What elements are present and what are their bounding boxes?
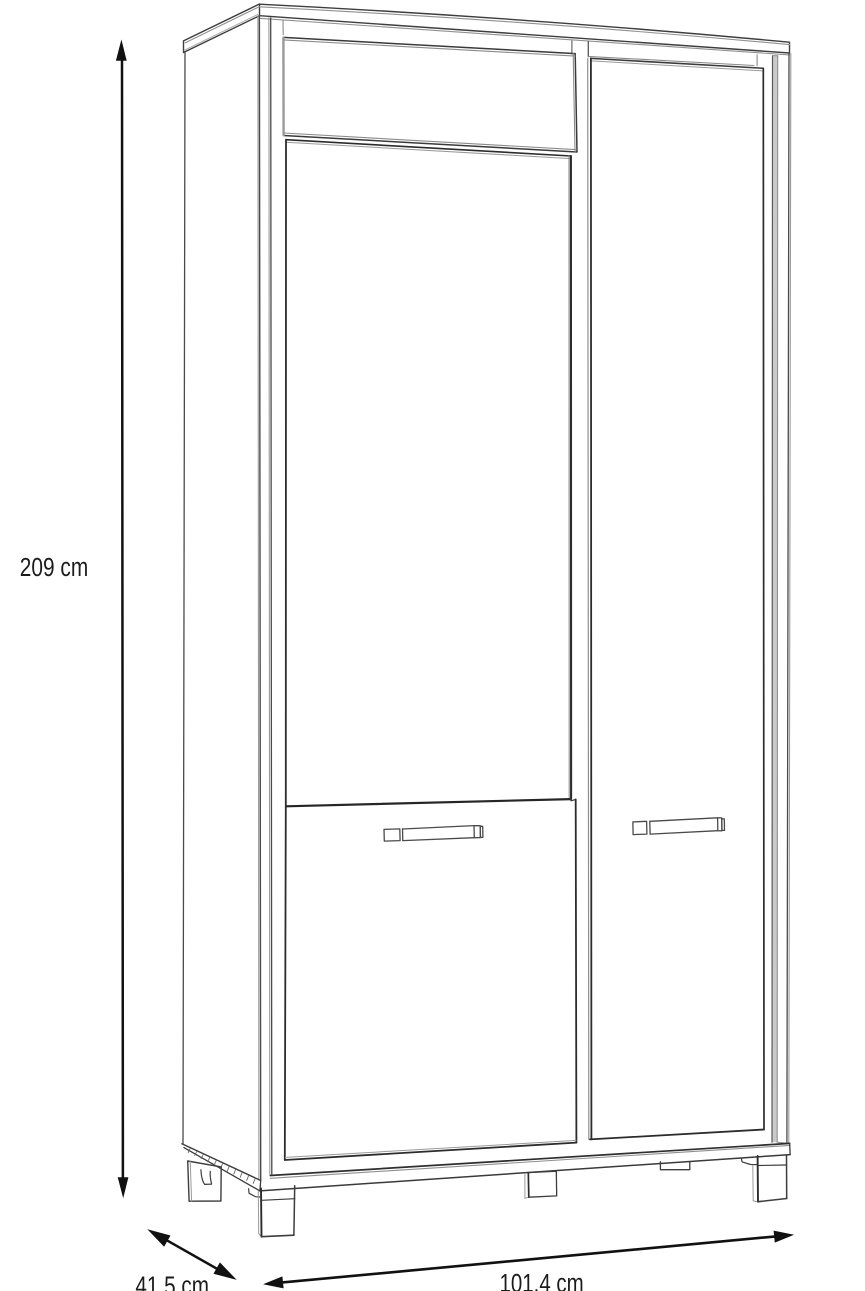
svg-text:209 cm: 209 cm (20, 554, 88, 582)
svg-text:101.4 cm: 101.4 cm (500, 1270, 584, 1291)
svg-text:41,5 cm: 41,5 cm (135, 1272, 209, 1291)
